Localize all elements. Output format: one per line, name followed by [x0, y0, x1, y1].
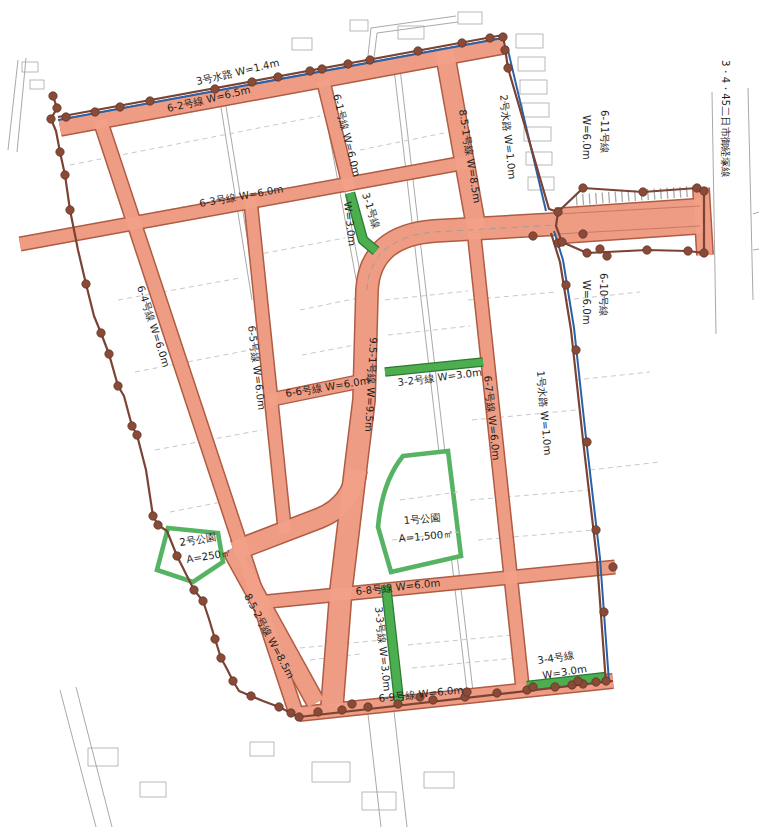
- plan-map-canvas: 3号水路 W=1.4m 6-2号線 W=6.5m 6-1号線 W=6.0m 8.…: [0, 0, 759, 827]
- land-readjustment-plan-map: 3号水路 W=1.4m 6-2号線 W=6.5m 6-1号線 W=6.0m 8.…: [0, 0, 759, 827]
- park-1-outline: [378, 451, 461, 572]
- label-road-3-4-name: 3-4号線: [537, 649, 575, 666]
- label-waterway-1: 1号水路 W=1.0m: [535, 370, 553, 456]
- label-road-6-10-name: 6-10号線: [598, 273, 609, 317]
- road-6-7: [474, 233, 523, 692]
- label-waterway-2: 2号水路 W=1.0m: [498, 94, 518, 180]
- east-connector: [556, 216, 702, 226]
- label-road-6-11-name: 6-11号線: [599, 110, 610, 154]
- label-road-6-10-width: W=6.0m: [581, 280, 592, 325]
- label-road-6-11-width: W=6.0m: [581, 115, 592, 160]
- road-8-5-2: [231, 549, 316, 703]
- label-arterial-road: 3・4・45二日市御経塚線: [720, 60, 731, 178]
- road-6-2: [60, 46, 503, 128]
- labels-layer: 3号水路 W=1.4m 6-2号線 W=6.5m 6-1号線 W=6.0m 8.…: [135, 57, 731, 704]
